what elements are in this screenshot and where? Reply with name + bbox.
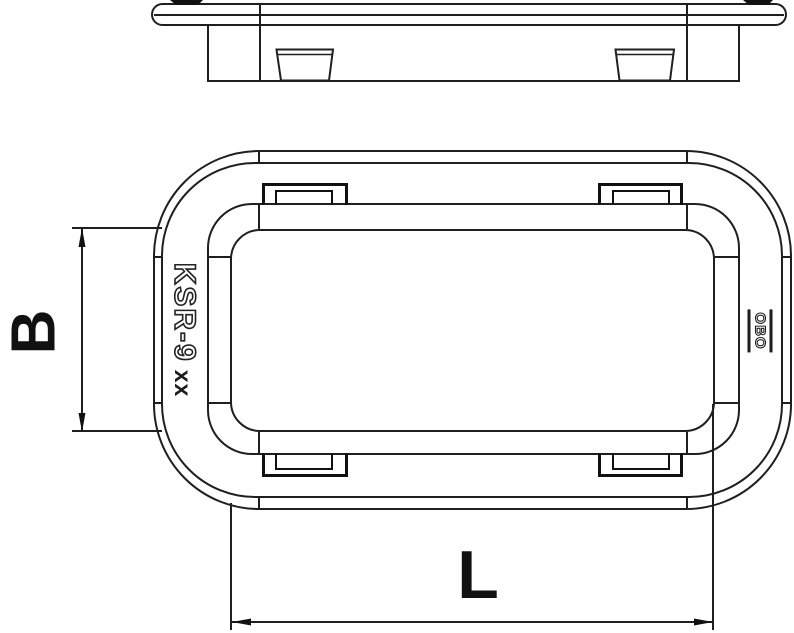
brand-logo-text: OBO — [752, 312, 769, 349]
clip-top-right-inner — [612, 190, 670, 205]
dim-b-extension-top — [72, 227, 162, 229]
dim-b-label: B — [0, 310, 70, 355]
tangent-tick — [258, 151, 260, 162]
tangent-tick — [782, 256, 791, 258]
side-view-body — [207, 25, 740, 82]
dim-b-extension-bottom — [72, 430, 162, 432]
tangent-tick — [714, 256, 739, 258]
tangent-tick — [258, 204, 260, 229]
tangent-tick — [208, 402, 231, 404]
tangent-tick — [208, 256, 231, 258]
product-code-print: KSR-9xx — [167, 263, 201, 398]
clip-bottom-left-inner — [275, 453, 333, 470]
tangent-tick — [714, 402, 739, 404]
tangent-tick — [258, 432, 260, 455]
tangent-tick — [686, 204, 688, 229]
tangent-tick — [686, 498, 688, 509]
tangent-tick — [154, 402, 162, 404]
tangent-tick — [154, 256, 162, 258]
opening-contour — [230, 229, 715, 432]
brand-logo: OBO — [748, 309, 773, 352]
side-view-flange-edge-line — [154, 14, 784, 16]
technical-drawing: KSR-9xx OBO B L — [0, 0, 794, 633]
product-code: KSR-9 — [168, 263, 201, 363]
dim-l-label: L — [457, 536, 499, 614]
tangent-tick — [686, 432, 688, 455]
clip-top-left-inner — [275, 190, 333, 205]
dim-b-line — [81, 229, 83, 431]
clip-bottom-right-inner — [612, 453, 670, 470]
tangent-tick — [782, 402, 791, 404]
dim-l-line — [232, 621, 713, 623]
tangent-tick — [686, 151, 688, 162]
tangent-tick — [258, 498, 260, 509]
dim-l-extension-right — [712, 404, 714, 630]
dim-l-extension-left — [230, 503, 232, 630]
product-variant: xx — [170, 370, 196, 398]
